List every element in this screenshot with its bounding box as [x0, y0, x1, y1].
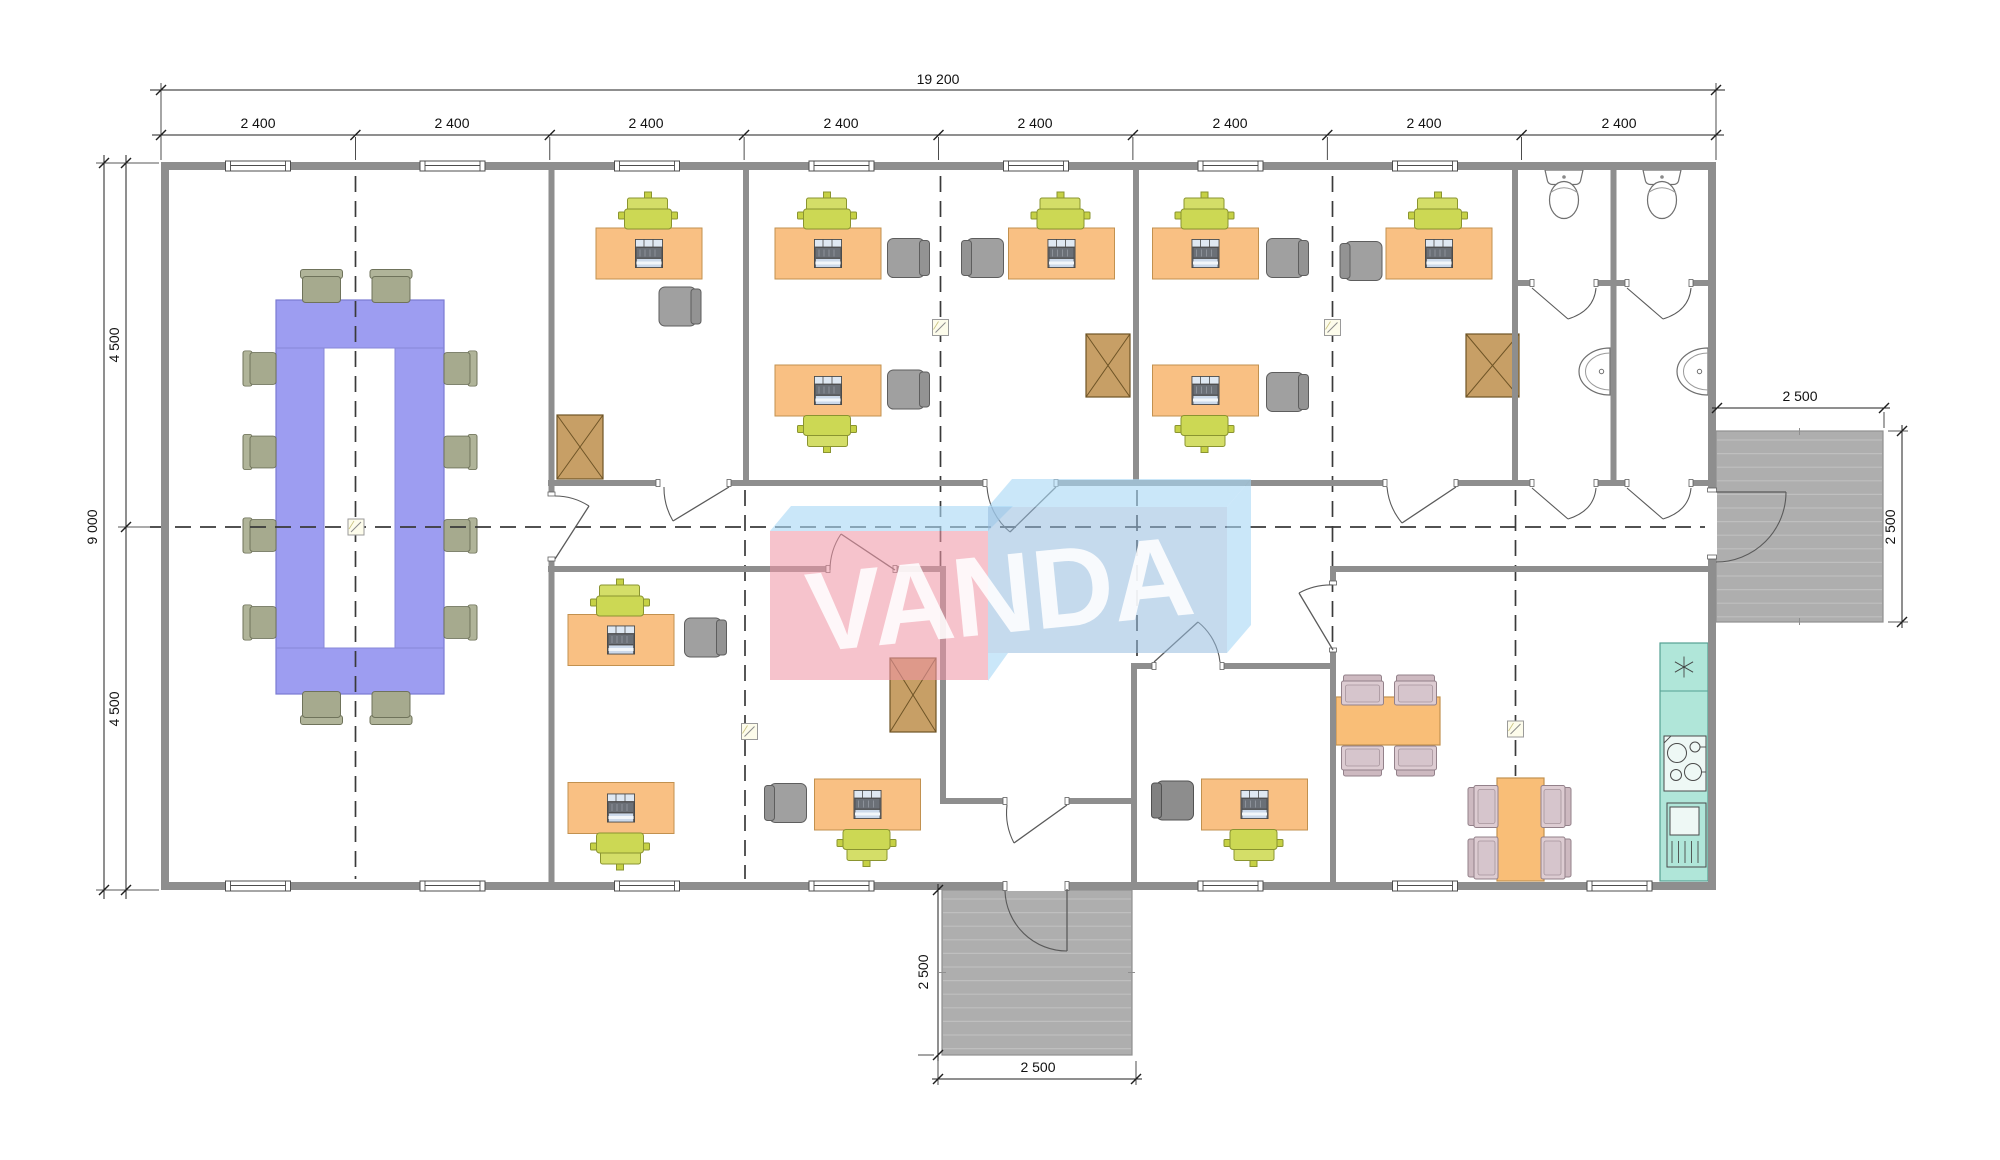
svg-text:2 500: 2 500 — [1020, 1059, 1055, 1075]
svg-text:2 500: 2 500 — [1882, 509, 1898, 544]
svg-text:2 400: 2 400 — [1406, 115, 1441, 131]
svg-text:2 400: 2 400 — [628, 115, 663, 131]
svg-text:19 200: 19 200 — [917, 71, 960, 87]
svg-text:2 400: 2 400 — [1212, 115, 1247, 131]
svg-text:2 500: 2 500 — [1782, 388, 1817, 404]
svg-text:4 500: 4 500 — [106, 691, 122, 726]
svg-text:2 400: 2 400 — [240, 115, 275, 131]
svg-text:2 400: 2 400 — [1601, 115, 1636, 131]
svg-text:2 400: 2 400 — [434, 115, 469, 131]
svg-text:4 500: 4 500 — [106, 327, 122, 362]
svg-text:2 400: 2 400 — [1017, 115, 1052, 131]
svg-text:2 500: 2 500 — [915, 954, 931, 989]
svg-text:9 000: 9 000 — [84, 509, 100, 544]
svg-text:2 400: 2 400 — [823, 115, 858, 131]
